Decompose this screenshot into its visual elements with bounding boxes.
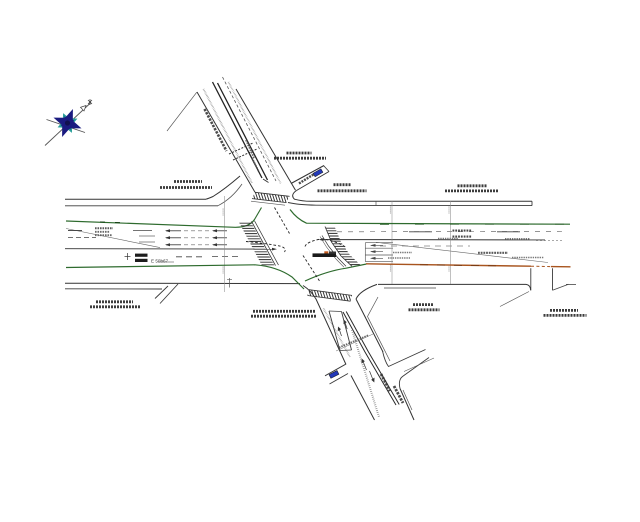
svg-text:E 50b67: E 50b67: [151, 259, 169, 264]
